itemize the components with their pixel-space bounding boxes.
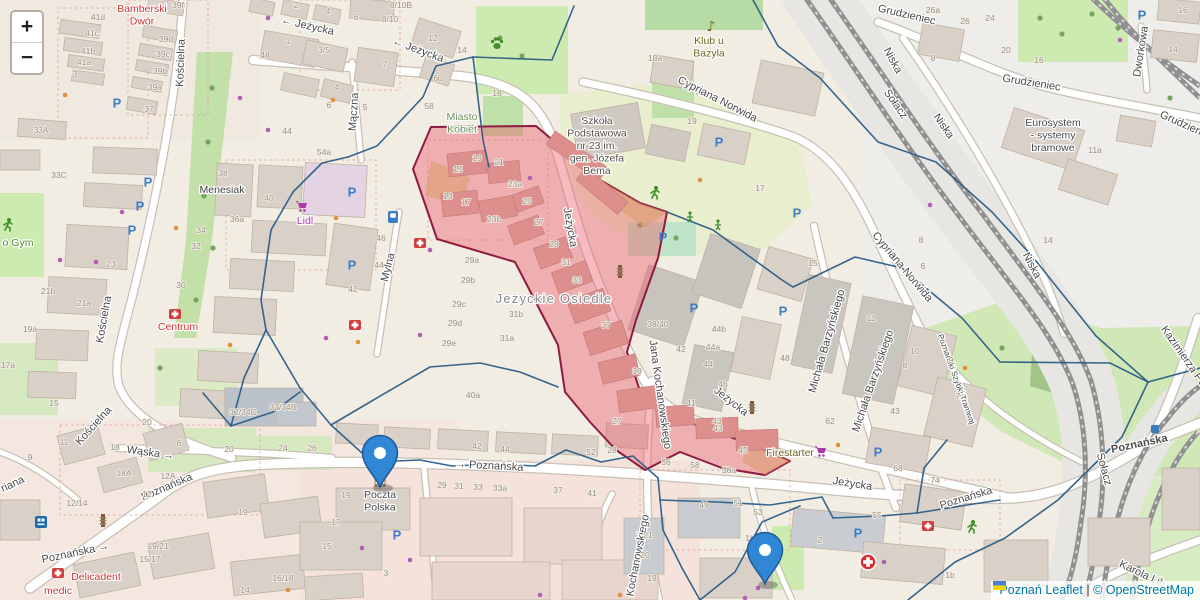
house-number: 25 xyxy=(522,196,532,206)
first-aid-icon-part xyxy=(417,242,424,245)
house-number: 31a xyxy=(500,333,514,343)
shop-dot-icon xyxy=(324,336,329,341)
house-number: 55 xyxy=(872,510,882,520)
marker-poczta-polska-part xyxy=(373,484,393,492)
parking-icon: P xyxy=(779,304,788,319)
shop-dot-icon xyxy=(266,128,271,133)
parking-icon: P xyxy=(144,175,153,190)
shop-dot-icon xyxy=(266,16,271,21)
house-number: 6 xyxy=(354,12,359,22)
parking-icon: P xyxy=(393,528,402,543)
paw-icon-part xyxy=(493,43,500,49)
street-label: Kościelna xyxy=(174,38,188,87)
green-area xyxy=(0,193,44,277)
emergency-cross-icon-part xyxy=(863,560,873,564)
house-number: 32 xyxy=(191,241,201,251)
tree xyxy=(1037,15,1042,20)
shop-dot-icon xyxy=(238,96,243,101)
house-number: 23b xyxy=(487,214,501,224)
house-number: 14 xyxy=(1043,235,1053,245)
building xyxy=(752,60,824,116)
shop-dot-icon xyxy=(58,258,63,263)
fuel-icon-part xyxy=(390,213,396,218)
house-number: 6 xyxy=(327,100,332,110)
house-number: 40 xyxy=(264,193,274,203)
cart-icon-part xyxy=(303,209,306,212)
house-number: 29e xyxy=(442,338,456,348)
house-number: 29d xyxy=(448,318,462,328)
house-number: 62 xyxy=(825,416,835,426)
parking-icon: P xyxy=(1138,8,1147,23)
house-number: 15 xyxy=(49,398,59,408)
parking-icon: P xyxy=(136,199,145,214)
house-number: 21 xyxy=(494,157,504,167)
osm-link[interactable]: © OpenStreetMap xyxy=(1093,583,1194,597)
map-canvas[interactable]: ← Jeżycka← JeżyckaJeżyckaJeżyckaJeżyckaM… xyxy=(0,0,1200,600)
paw-icon-part xyxy=(494,37,497,40)
house-number: 15/17 xyxy=(139,554,161,564)
shop-dot-icon xyxy=(928,203,933,208)
poi-label: Dwór xyxy=(130,16,155,28)
first-aid-icon xyxy=(922,521,934,531)
tree xyxy=(673,235,678,240)
playground-icon-part xyxy=(688,211,691,214)
shop-dot-icon xyxy=(882,560,887,565)
house-number: 19a xyxy=(23,324,37,334)
house-number: 26 xyxy=(307,443,317,453)
parking-icon: P xyxy=(113,96,122,111)
house-number: 23 xyxy=(106,259,116,269)
house-number: 18 xyxy=(110,442,120,452)
house-number: 13 xyxy=(443,191,453,201)
building xyxy=(1088,518,1150,566)
ukraine-flag-icon xyxy=(993,581,1006,590)
house-number: 20 xyxy=(224,444,234,454)
house-number: 29b xyxy=(461,275,475,285)
house-number: 24 xyxy=(985,13,995,23)
building xyxy=(757,247,813,302)
building xyxy=(731,316,782,379)
house-number: 40a xyxy=(466,390,480,400)
zoom-in-button[interactable]: + xyxy=(12,12,42,43)
house-number: 3/5 xyxy=(318,45,330,55)
house-number: 60 xyxy=(433,73,443,83)
house-number: 29 xyxy=(549,239,559,249)
house-number: 20 xyxy=(640,550,650,560)
craft-dot-icon xyxy=(331,98,336,103)
house-number: 21b xyxy=(41,286,55,296)
bus-icon-part xyxy=(42,519,45,522)
house-number: 49 xyxy=(699,500,709,510)
first-aid-icon xyxy=(52,568,64,578)
craft-dot-icon xyxy=(836,443,841,448)
house-number: 53 xyxy=(753,507,763,517)
craft-dot-icon xyxy=(618,593,623,598)
house-number: 74 xyxy=(930,475,940,485)
poi-label: Menesiak xyxy=(200,184,246,196)
monument-icon-part xyxy=(749,404,755,405)
fuel-icon xyxy=(388,211,398,223)
house-number: 18A xyxy=(116,468,131,478)
house-number: 19 xyxy=(238,507,248,517)
shop-dot-icon xyxy=(528,176,533,181)
craft-dot-icon xyxy=(963,366,968,371)
shop-dot-icon xyxy=(418,333,423,338)
house-number: 27 xyxy=(612,416,622,426)
poi-label: Miasto xyxy=(447,111,478,123)
house-number: 48 xyxy=(780,353,790,363)
first-aid-icon-part xyxy=(352,324,359,327)
house-number: 39b xyxy=(153,66,167,76)
first-aid-icon xyxy=(169,309,181,319)
house-number: 6 xyxy=(921,261,926,271)
poi-label: Szkoła xyxy=(581,115,613,127)
house-number: 58a xyxy=(722,465,736,475)
poi-label: Eurosystem xyxy=(1025,117,1081,129)
house-number: 32/34B xyxy=(270,402,297,412)
house-number: 18a xyxy=(648,53,662,63)
house-number: 39f xyxy=(172,0,184,10)
playground-icon-part xyxy=(716,219,719,222)
shop-dot-icon xyxy=(538,593,543,598)
building xyxy=(213,296,277,335)
building xyxy=(28,371,77,399)
cart-icon-part xyxy=(822,454,825,457)
house-number: 42 xyxy=(348,284,358,294)
shop-dot-icon xyxy=(120,210,125,215)
house-number: 1 xyxy=(286,36,291,46)
house-number: 39d xyxy=(159,34,173,44)
house-number: 31 xyxy=(454,481,464,491)
tree xyxy=(157,365,162,370)
tree xyxy=(193,297,198,302)
house-number: 4 xyxy=(335,82,340,92)
music-note-icon: ♪ xyxy=(707,19,716,35)
cart-icon-part xyxy=(818,454,821,457)
tree xyxy=(519,53,524,58)
house-number: 42 xyxy=(472,441,482,451)
house-number: 7 xyxy=(956,391,961,401)
house-number: 2 xyxy=(818,535,823,545)
house-number: 39 xyxy=(632,366,642,376)
poi-label: medic xyxy=(44,585,72,597)
tree xyxy=(205,139,210,144)
house-number: 12 xyxy=(428,33,438,43)
house-number: 34 xyxy=(196,225,206,235)
building xyxy=(354,47,398,86)
house-number: 38 xyxy=(218,168,228,178)
house-number: 19 xyxy=(647,573,657,583)
house-number: 41 xyxy=(587,488,597,498)
house-number: 1b xyxy=(945,570,955,580)
house-number: 24 xyxy=(278,443,288,453)
house-number: 52 xyxy=(586,447,596,457)
building xyxy=(47,277,107,316)
tree xyxy=(210,245,215,250)
tree xyxy=(1089,11,1094,16)
house-number: 3 xyxy=(384,568,389,578)
poi-label: nr 23 im. xyxy=(577,140,618,152)
house-number: 51 xyxy=(733,498,743,508)
poi-label: Delicadent xyxy=(71,571,121,583)
bus-icon-part xyxy=(38,524,45,526)
house-number: 41d xyxy=(91,12,105,22)
monument-icon-part xyxy=(749,410,755,411)
house-number: 16 xyxy=(1034,55,1044,65)
building xyxy=(304,573,364,600)
green-area xyxy=(645,0,763,30)
house-number: 33C xyxy=(51,170,67,180)
building xyxy=(83,182,142,209)
poi-label: Lidl xyxy=(297,215,313,227)
craft-dot-icon xyxy=(698,178,703,183)
house-number: 29c xyxy=(452,299,466,309)
building xyxy=(303,162,368,217)
house-number: 46 xyxy=(376,233,386,243)
house-number: 20 xyxy=(142,417,152,427)
transit-stop-icon xyxy=(1151,425,1159,433)
house-number: 8 xyxy=(903,360,908,370)
house-number: 19 xyxy=(472,153,482,163)
monument-icon-part xyxy=(749,407,755,408)
poi-label: Kobiet xyxy=(447,124,477,136)
poi-label: Centrum xyxy=(158,321,199,333)
monument-icon-part xyxy=(100,520,106,521)
house-number: 36a xyxy=(230,214,244,224)
tree xyxy=(1167,95,1172,100)
house-number: 38/40 xyxy=(647,319,669,329)
map-render: ← Jeżycka← JeżyckaJeżyckaJeżyckaJeżyckaM… xyxy=(0,0,1200,600)
house-number: 15 xyxy=(322,541,332,551)
building xyxy=(1162,468,1200,530)
house-number: 3 xyxy=(73,69,78,79)
house-number: 8/10B xyxy=(390,0,413,10)
house-number: 33a xyxy=(493,483,507,493)
house-number: 31 xyxy=(561,257,571,267)
zoom-out-button[interactable]: − xyxy=(12,43,42,73)
cart-icon-part xyxy=(299,209,302,212)
tree xyxy=(1059,31,1064,36)
house-number: 21a xyxy=(77,298,91,308)
house-number: 44 xyxy=(703,359,713,369)
cart-icon-part xyxy=(817,448,826,453)
house-number: 16/18 xyxy=(272,573,294,583)
house-number: 54a xyxy=(317,147,331,157)
house-number: 11a xyxy=(1088,145,1102,155)
house-number: 29a xyxy=(465,255,479,265)
house-number: 11 xyxy=(867,313,876,323)
building xyxy=(93,147,158,175)
house-number: 43 xyxy=(890,406,900,416)
craft-dot-icon xyxy=(174,226,179,231)
building xyxy=(229,258,294,291)
bus-icon-part xyxy=(35,516,47,528)
house-number: 23a xyxy=(508,179,522,189)
house-number: 12/14 xyxy=(66,498,88,508)
parking-icon: P xyxy=(715,135,724,150)
poi-label: Podstawowa xyxy=(567,128,627,140)
shop-dot-icon xyxy=(428,248,433,253)
bus-icon xyxy=(35,516,47,528)
house-number: 8 xyxy=(931,53,936,63)
house-number: 30 xyxy=(176,280,186,290)
house-number: 41b xyxy=(81,46,95,56)
house-number: 44 xyxy=(500,444,510,454)
house-number: 11 xyxy=(60,437,69,447)
first-aid-icon xyxy=(414,238,426,248)
emergency-cross-icon xyxy=(860,554,876,570)
house-number: 41 xyxy=(686,398,696,408)
poi-label: Bema xyxy=(583,165,611,177)
house-number: 7 xyxy=(383,59,388,69)
house-number: 26a xyxy=(926,5,940,15)
house-number: 44 xyxy=(374,260,384,270)
shop-dot-icon xyxy=(1118,38,1123,43)
house-number: 39c xyxy=(156,49,170,59)
craft-dot-icon xyxy=(286,588,291,593)
house-number: 15 xyxy=(453,164,463,174)
parking-icon: P xyxy=(659,230,668,245)
house-number: 37 xyxy=(553,485,563,495)
house-number: 37 xyxy=(144,104,154,114)
building xyxy=(300,522,382,570)
house-number: 6 xyxy=(177,438,182,448)
house-number: 39a xyxy=(148,82,162,92)
craft-dot-icon xyxy=(356,340,361,345)
house-number: 44b xyxy=(712,324,726,334)
first-aid-icon-part xyxy=(55,572,62,575)
house-number: 9 xyxy=(949,355,954,365)
house-number: 41c xyxy=(85,28,99,38)
runner-icon xyxy=(968,520,976,533)
zoom-control: + − xyxy=(10,10,44,75)
house-number: 17a xyxy=(1,360,15,370)
building xyxy=(524,508,602,564)
tree xyxy=(209,85,214,90)
first-aid-icon-part xyxy=(172,313,179,316)
house-number: 19/21 xyxy=(147,541,169,551)
monument-icon xyxy=(749,401,755,414)
building xyxy=(432,562,550,600)
building xyxy=(420,498,512,556)
poi-label: - systemy xyxy=(1031,130,1077,142)
parking-icon: P xyxy=(348,185,357,200)
poi-label: Bamberski xyxy=(117,3,167,15)
shop-dot-icon xyxy=(360,546,365,551)
runner-icon-part xyxy=(968,524,976,533)
monument-icon-part xyxy=(100,517,106,518)
house-number: 58 xyxy=(424,101,434,111)
house-number: 42 xyxy=(676,344,686,354)
house-number: 48 xyxy=(260,50,270,60)
craft-dot-icon xyxy=(334,216,339,221)
poi-label: Klub u xyxy=(694,35,724,47)
building xyxy=(35,329,88,361)
house-number: 44a xyxy=(706,342,720,352)
poi-label: Polska xyxy=(364,502,396,514)
house-number: 31b xyxy=(509,309,523,319)
craft-dot-icon xyxy=(63,93,68,98)
house-number: 14 xyxy=(240,585,250,595)
shop-dot-icon xyxy=(94,260,99,265)
poi-label: Bazyla xyxy=(693,48,725,60)
parking-icon: P xyxy=(874,445,883,460)
house-number: 29 xyxy=(437,480,447,490)
house-number: 32/34C xyxy=(229,407,256,417)
monument-icon-part xyxy=(617,271,623,272)
house-number: 4 xyxy=(326,6,331,16)
house-number: 37 xyxy=(601,320,611,330)
house-number: 10 xyxy=(910,346,920,356)
monument-icon-part xyxy=(100,523,106,524)
craft-dot-icon xyxy=(228,343,233,348)
house-number: 19 xyxy=(687,116,697,126)
poi-label: Jeżyckie Osiedle xyxy=(496,291,613,306)
house-number: 14 xyxy=(1168,44,1178,54)
first-aid-icon-part xyxy=(925,525,932,528)
parking-icon: P xyxy=(854,526,863,541)
building xyxy=(0,500,40,540)
house-number: 12A xyxy=(160,471,175,481)
overlay-boundary-line xyxy=(331,363,558,425)
paw-icon-part xyxy=(500,40,503,43)
house-number: 21 xyxy=(643,530,653,540)
monument-icon-part xyxy=(617,274,623,275)
house-number: 16 xyxy=(1178,5,1188,15)
music-note-icon-part: ♪ xyxy=(707,19,716,35)
house-number: 15 xyxy=(808,258,818,268)
shop-dot-icon xyxy=(408,558,413,563)
cart-icon-part xyxy=(298,203,307,208)
house-number: 68 xyxy=(893,463,903,473)
house-number: 14 xyxy=(457,45,467,55)
house-number: 41a xyxy=(77,57,91,67)
house-number: 17 xyxy=(755,183,765,193)
house-number: 58 xyxy=(690,460,700,470)
monument-icon-part xyxy=(617,268,623,269)
poi-label: Firestarter xyxy=(766,447,814,459)
house-number: 5 xyxy=(363,102,368,112)
house-number: 26 xyxy=(960,16,970,26)
poi-label: gen. Józefa xyxy=(570,153,624,165)
paw-icon-part xyxy=(497,37,500,40)
bus-icon-part xyxy=(38,519,41,522)
poi-label: bramowe xyxy=(1031,142,1074,154)
building xyxy=(251,220,327,256)
house-number: 8/10 xyxy=(382,14,399,24)
house-number: 27 xyxy=(534,217,544,227)
house-number: 33A xyxy=(33,125,48,135)
parking-icon: P xyxy=(793,206,802,221)
house-number: 19 xyxy=(341,490,351,500)
marker-south-part xyxy=(759,544,771,556)
house-number: 44 xyxy=(282,126,292,136)
house-number: 17 xyxy=(461,197,471,207)
building xyxy=(918,23,965,62)
building xyxy=(281,72,320,97)
house-number: 28 xyxy=(607,445,617,455)
house-number: 43 xyxy=(713,423,723,433)
house-number: 12 xyxy=(142,489,152,499)
poi-label: o Gym xyxy=(3,237,34,249)
leaflet-link[interactable]: Leaflet xyxy=(1045,583,1083,597)
house-number: 2 xyxy=(294,0,299,10)
house-number: 9 xyxy=(28,452,33,462)
marker-south-part xyxy=(758,581,778,589)
house-number: 33 xyxy=(473,482,483,492)
paw-icon-part xyxy=(491,40,494,43)
house-number: 45 xyxy=(738,445,748,455)
